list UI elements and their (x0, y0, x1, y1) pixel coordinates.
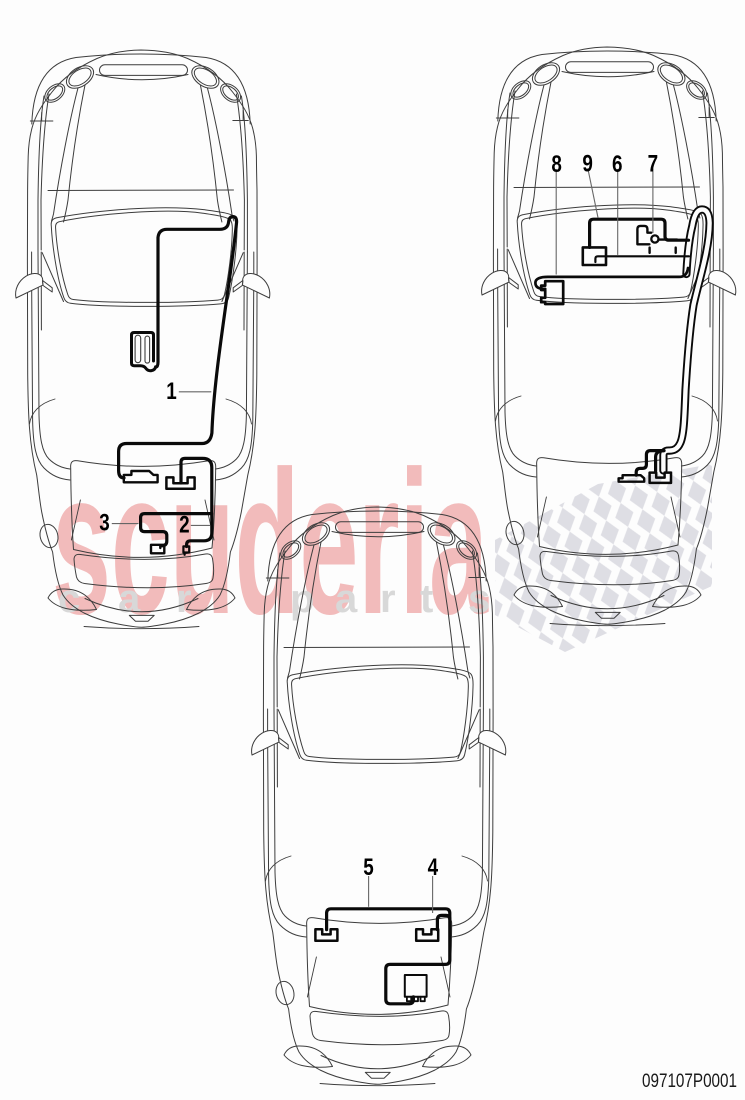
svg-text:2: 2 (179, 511, 190, 538)
svg-text:3: 3 (99, 510, 110, 537)
svg-text:5: 5 (363, 854, 374, 881)
svg-text:8: 8 (551, 151, 562, 178)
svg-text:6: 6 (612, 151, 623, 178)
svg-text:r: r (176, 577, 192, 621)
svg-text:9: 9 (582, 151, 593, 178)
svg-text:t: t (420, 577, 433, 621)
svg-text:a: a (335, 577, 358, 621)
svg-text:097107P0001: 097107P0001 (642, 1070, 737, 1092)
svg-text:c: c (58, 577, 80, 621)
svg-text:7: 7 (648, 151, 659, 178)
svg-text:1: 1 (166, 378, 177, 405)
svg-text:r: r (380, 577, 396, 621)
svg-text:4: 4 (428, 854, 439, 881)
svg-text:a: a (118, 577, 141, 621)
